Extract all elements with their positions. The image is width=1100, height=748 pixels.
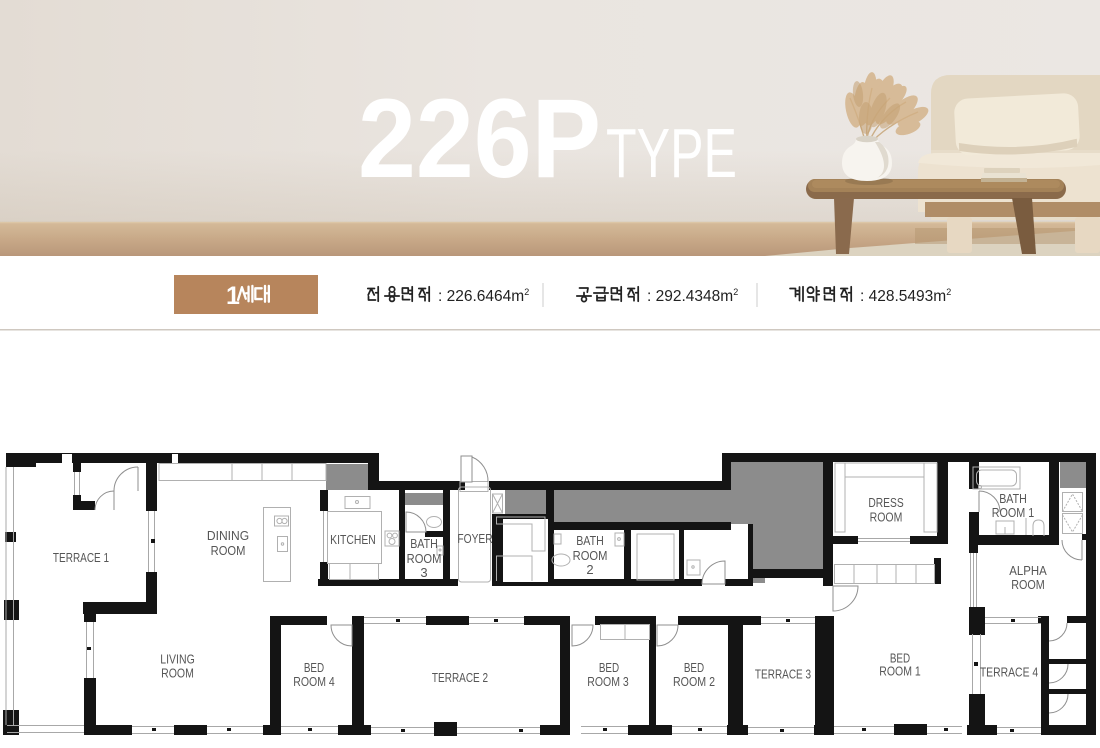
svg-text:ROOM: ROOM (1011, 577, 1045, 592)
svg-text:ROOM: ROOM (407, 551, 442, 566)
svg-text:TERRACE 4: TERRACE 4 (980, 665, 1039, 679)
svg-text:KITCHEN: KITCHEN (330, 533, 376, 547)
svg-text:BATH: BATH (999, 491, 1027, 506)
svg-text:1: 1 (226, 282, 240, 310)
svg-text:ROOM 1: ROOM 1 (879, 663, 920, 678)
svg-text:: 292.4348m2: : 292.4348m2 (647, 287, 738, 305)
svg-text:TERRACE 1: TERRACE 1 (53, 551, 109, 566)
svg-text:ROOM: ROOM (211, 543, 246, 558)
svg-text:3: 3 (420, 565, 427, 580)
svg-text:BATH: BATH (576, 533, 604, 548)
svg-text:DRESS: DRESS (868, 496, 904, 510)
svg-text:ROOM: ROOM (573, 548, 608, 563)
svg-text:TYPE: TYPE (606, 114, 737, 192)
svg-text:: 226.6464m2: : 226.6464m2 (438, 287, 529, 305)
svg-text:ROOM: ROOM (870, 509, 903, 524)
svg-text:ALPHA: ALPHA (1009, 563, 1047, 578)
svg-text:BATH: BATH (410, 536, 438, 551)
svg-text:ROOM 4: ROOM 4 (293, 674, 335, 689)
svg-text:FOYER: FOYER (457, 532, 492, 546)
svg-text:226P: 226P (358, 76, 601, 201)
svg-text:2: 2 (586, 562, 593, 577)
svg-text:ROOM 2: ROOM 2 (673, 674, 715, 689)
svg-text:ROOM 3: ROOM 3 (587, 674, 629, 689)
svg-text:TERRACE 2: TERRACE 2 (432, 671, 488, 686)
svg-text:ROOM 1: ROOM 1 (992, 505, 1035, 520)
svg-text:TERRACE 3: TERRACE 3 (755, 667, 811, 682)
svg-text:DINING: DINING (207, 529, 249, 543)
svg-text:: 428.5493m2: : 428.5493m2 (860, 287, 951, 305)
svg-text:ROOM: ROOM (161, 665, 194, 680)
